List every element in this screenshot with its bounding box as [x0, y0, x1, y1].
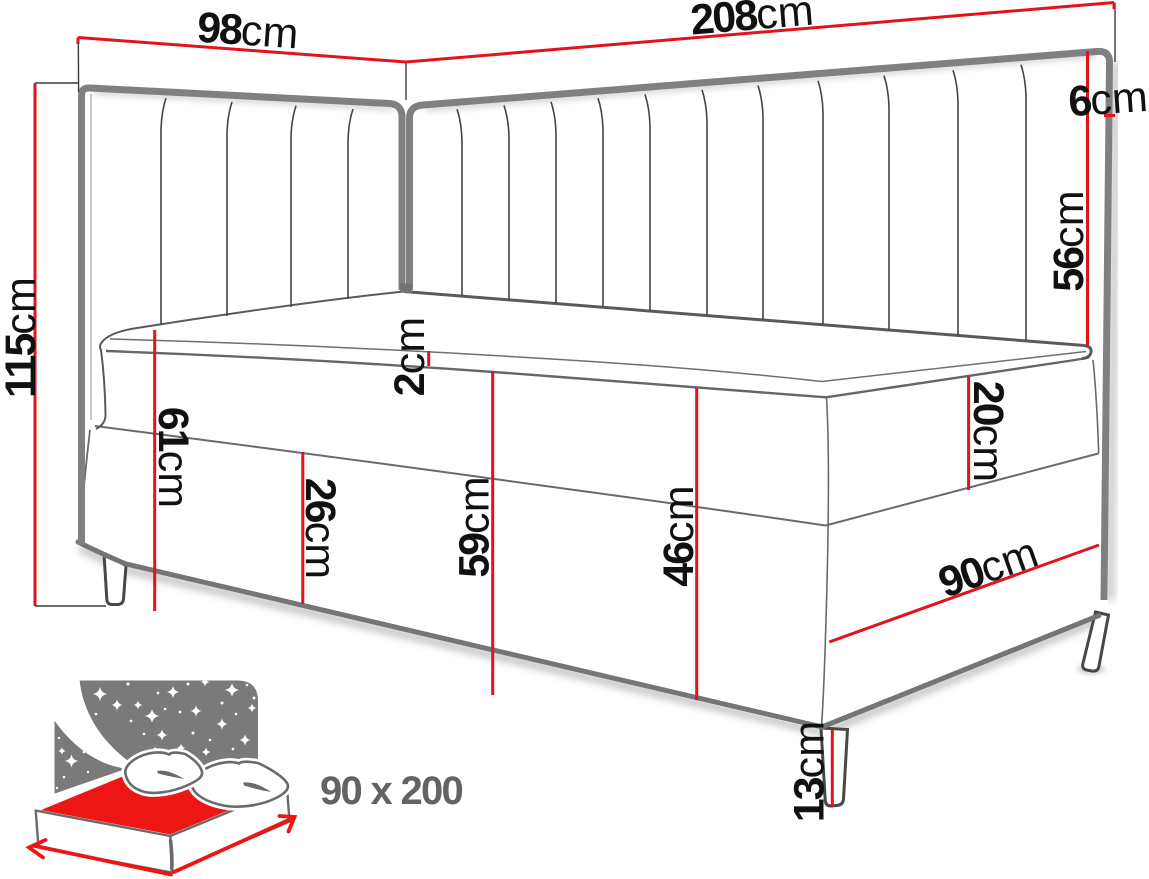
svg-text:115cm: 115cm [0, 277, 45, 398]
svg-text:61cm: 61cm [149, 407, 197, 509]
svg-text:20cm: 20cm [964, 381, 1012, 483]
svg-text:2cm: 2cm [386, 317, 434, 397]
svg-text:98cm: 98cm [196, 4, 301, 59]
svg-text:90 x 200: 90 x 200 [320, 769, 463, 813]
svg-text:6cm: 6cm [1067, 73, 1149, 126]
svg-text:13cm: 13cm [786, 721, 834, 823]
svg-text:59cm: 59cm [451, 476, 499, 578]
svg-text:26cm: 26cm [296, 478, 344, 580]
svg-text:56cm: 56cm [1045, 190, 1093, 292]
svg-text:46cm: 46cm [655, 485, 703, 587]
